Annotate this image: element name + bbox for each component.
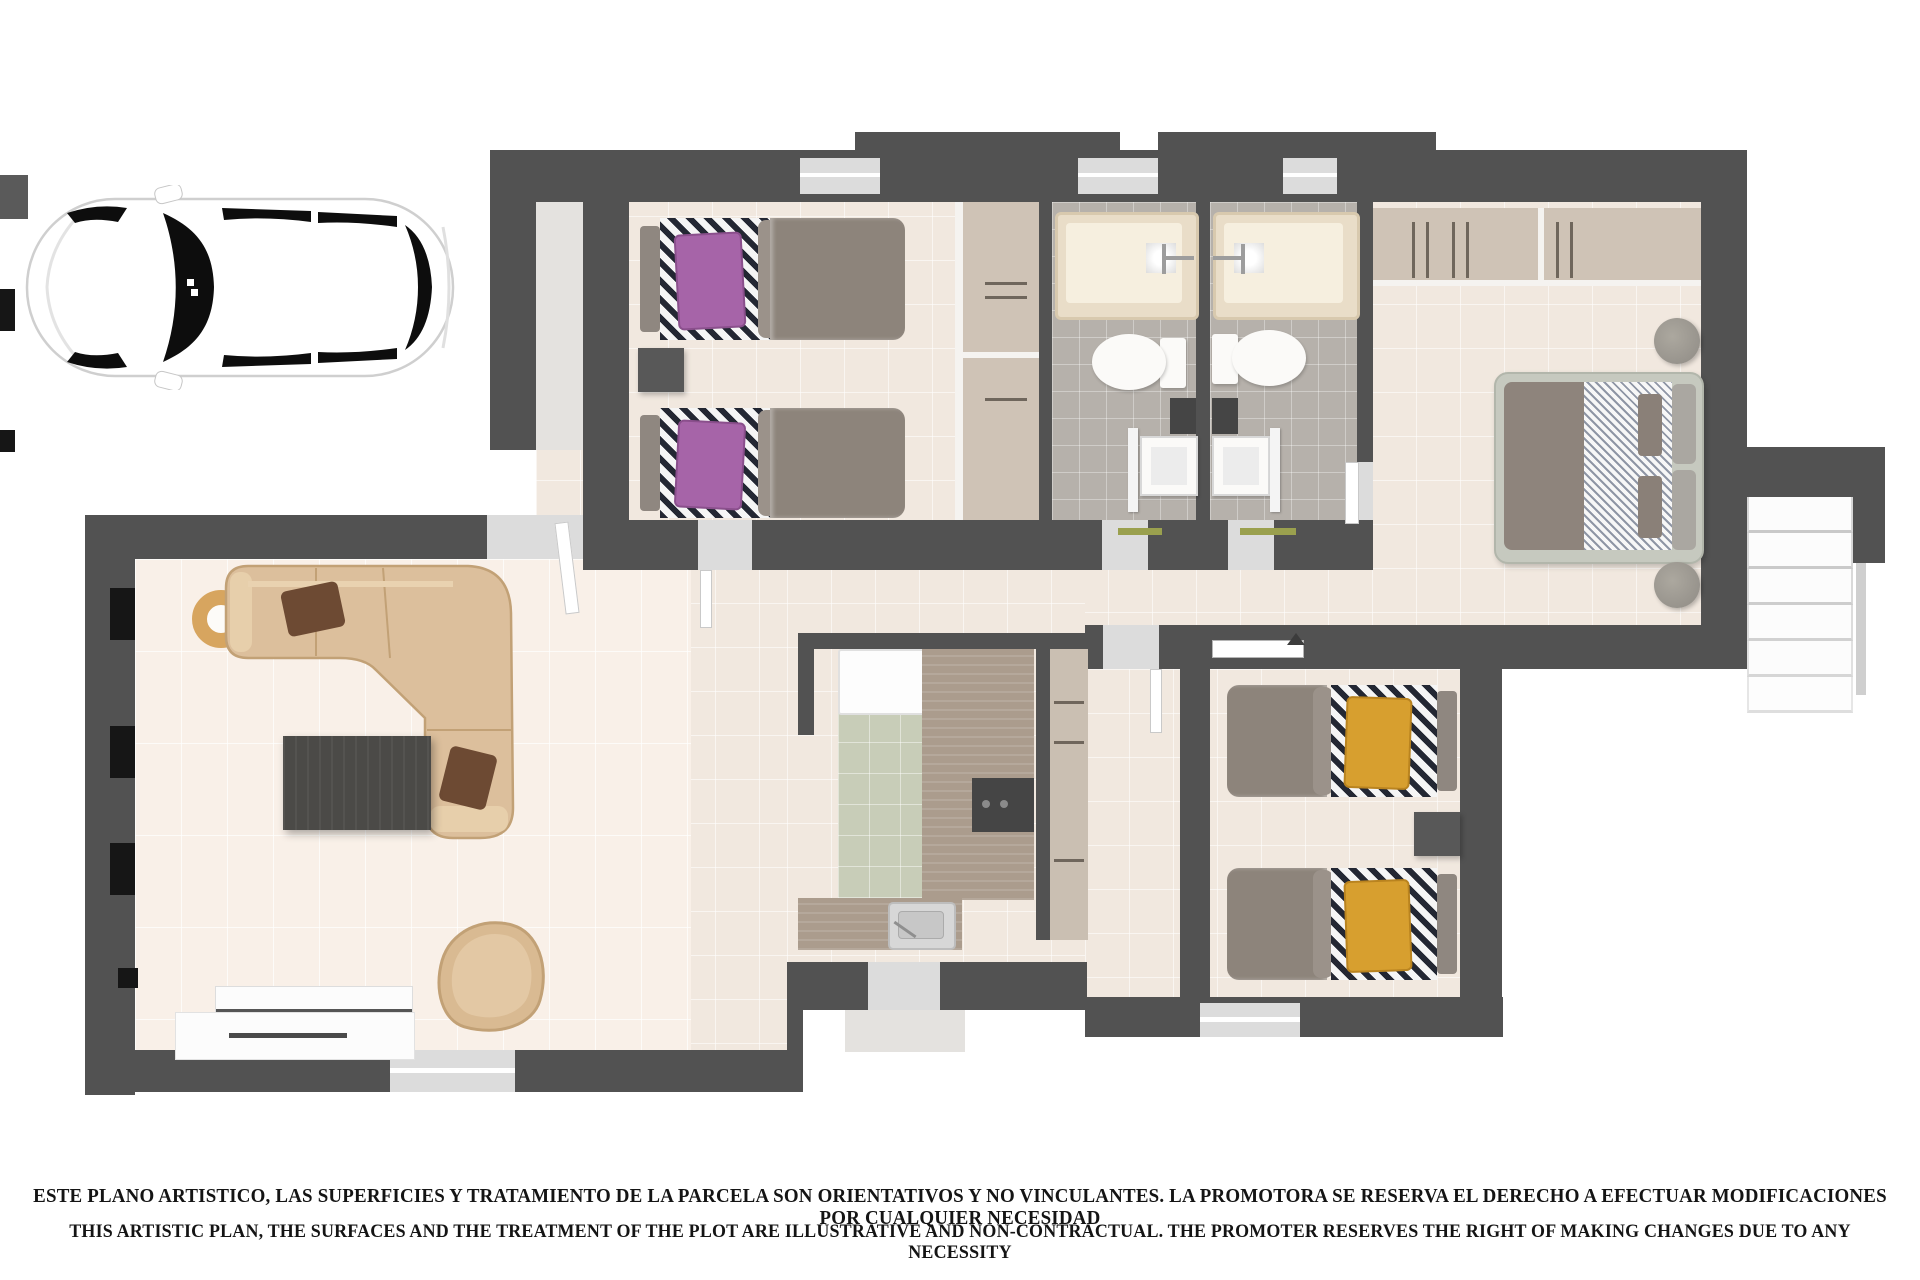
window-sill: [1283, 173, 1337, 177]
wall-bedroom3-left: [1180, 669, 1210, 997]
window-marker: [118, 968, 138, 988]
single-bed-purple-1: [640, 218, 905, 340]
master-open-closet: [1373, 208, 1701, 286]
bath-faucet: [1213, 238, 1247, 282]
bed-headboard: [640, 226, 660, 332]
round-bedside-table: [1654, 318, 1700, 364]
car-windshield-detail: [191, 289, 198, 296]
master-door-opening: [1357, 462, 1373, 520]
pillow-orange: [1343, 696, 1412, 790]
bath-niche: [1170, 398, 1196, 434]
pillow-purple: [674, 419, 747, 510]
cooktop-knob: [1000, 800, 1008, 808]
wall-stub-marker: [0, 175, 28, 219]
double-bed-master: [1494, 372, 1704, 564]
pillow-orange: [1343, 879, 1412, 973]
hanging-rail: [1556, 222, 1559, 278]
entry-porch-floor: [536, 202, 583, 450]
sink-panel: [1128, 428, 1138, 512]
wardrobe-handle: [985, 282, 1027, 285]
page-background: ESTE PLANO ARTISTICO, LAS SUPERFICIES Y …: [0, 0, 1920, 1280]
bath-niche: [1212, 398, 1238, 434]
cooktop-knob: [982, 800, 990, 808]
nightstand: [1414, 812, 1460, 856]
kitchen-sink: [888, 902, 956, 950]
towel-bar-green: [1240, 528, 1296, 535]
bed-duvet: [1227, 685, 1327, 797]
washbasin: [1212, 436, 1270, 496]
wardrobe-handle: [985, 296, 1027, 299]
wardrobe-divider: [955, 352, 1039, 358]
sink-panel: [1270, 428, 1280, 512]
bed-duvet: [770, 408, 905, 518]
wardrobe-handle: [985, 398, 1027, 401]
wall-bath1-left: [1037, 202, 1052, 520]
pillow-runner: [1638, 476, 1662, 538]
sink-basin: [898, 911, 944, 939]
wall-kitchen-top: [798, 633, 1088, 649]
bedroom1-wardrobe: [955, 202, 1039, 520]
fridge: [838, 649, 926, 715]
cabinet-handle: [1054, 701, 1084, 704]
faucet-arm: [1241, 244, 1245, 274]
hanging-rail: [1452, 222, 1455, 278]
shelf-bracket: [1287, 633, 1305, 645]
coffee-table: [283, 736, 431, 830]
bed-duvet: [770, 218, 905, 340]
back-porch-step: [845, 1010, 965, 1052]
toilet-bowl: [1092, 334, 1166, 390]
washbasin: [1140, 436, 1198, 496]
hall-tall-cabinets: [1050, 649, 1088, 940]
wall-shelf: [1212, 640, 1304, 658]
wall-living-top: [85, 515, 487, 559]
car-windshield-detail: [187, 279, 194, 286]
edge-marker: [0, 289, 15, 331]
window-sill: [390, 1068, 515, 1073]
duvet-fold: [1313, 870, 1333, 978]
staircase: [1747, 497, 1853, 713]
kitchen-back-door-opening: [868, 962, 940, 1010]
wardrobe-front-edge: [955, 202, 963, 520]
wall-stair-stub: [1853, 447, 1885, 563]
basin-inner: [1223, 447, 1259, 485]
single-bed-orange-1: [1227, 685, 1461, 797]
wall-bedroom3-right: [1460, 645, 1502, 1037]
master-door-leaf: [1345, 462, 1359, 524]
closet-front-edge: [1373, 280, 1701, 286]
bed-duvet: [1227, 868, 1327, 980]
pillow-grey: [1672, 470, 1696, 550]
bedroom1-door-opening: [698, 520, 752, 570]
window-sill: [1078, 173, 1158, 177]
bedroom1-door-leaf: [700, 570, 712, 628]
cabinet-handle: [1054, 741, 1084, 744]
bath-faucet: [1160, 238, 1194, 282]
sofa-armrest: [430, 806, 508, 832]
window-sill: [800, 173, 880, 177]
wall-kitchen-left-stub: [798, 633, 814, 735]
bedroom3-door-opening: [1103, 625, 1159, 669]
edge-marker: [0, 430, 15, 452]
pillow-purple: [674, 231, 747, 330]
towel-bar-green: [1118, 528, 1162, 535]
disclaimer-line-english: THIS ARTISTIC PLAN, THE SURFACES AND THE…: [29, 1222, 1891, 1264]
round-bedside-table: [1654, 562, 1700, 608]
cabinet-handle: [1054, 859, 1084, 862]
closet-divider: [1538, 208, 1544, 280]
nightstand: [638, 348, 684, 392]
faucet-arm: [1162, 244, 1166, 274]
stair-tread: [1747, 605, 1853, 641]
single-bed-purple-2: [640, 408, 905, 518]
hanging-rail: [1466, 222, 1469, 278]
stair-tread: [1747, 533, 1853, 569]
tv-sideboard-back: [215, 986, 413, 1014]
window-sill: [1200, 1017, 1300, 1022]
wall-stair-top: [1747, 447, 1853, 497]
hanging-rail: [1412, 222, 1415, 278]
wall-cabinet-column: [1036, 649, 1050, 940]
bed-headboard: [640, 415, 660, 511]
window-marker: [110, 588, 135, 640]
kitchen-counter-right: [922, 649, 1034, 900]
basin-inner: [1151, 447, 1187, 485]
wall-kitchen-bottom-jog: [787, 962, 803, 1092]
bed-headboard: [1437, 874, 1457, 974]
bedroom3-door-leaf: [1150, 669, 1162, 733]
hanging-rail: [1426, 222, 1429, 278]
stair-tread: [1747, 641, 1853, 677]
stair-side-wall: [1856, 563, 1866, 695]
duvet-fold: [1313, 687, 1333, 795]
window-marker: [110, 726, 135, 778]
wall-outer-right: [1701, 150, 1747, 628]
faucet-arm: [1213, 256, 1241, 260]
wall-top-raised: [855, 132, 1120, 152]
faucet-arm: [1166, 256, 1194, 260]
toilet-bowl: [1232, 330, 1306, 386]
bed-duvet: [1504, 382, 1584, 550]
tv-remote-handle: [229, 1033, 347, 1038]
single-bed-orange-2: [1227, 868, 1461, 980]
pillow-runner: [1638, 394, 1662, 456]
wall-middle-horizontal: [1085, 625, 1747, 669]
pillow-grey: [1672, 384, 1696, 464]
wall-bedroom1-left: [583, 202, 629, 570]
wall-outer-left-top: [490, 150, 536, 450]
cooktop: [972, 778, 1034, 832]
bed-headboard: [1437, 691, 1457, 791]
tv-sideboard-front: [175, 1012, 415, 1060]
stair-tread: [1747, 569, 1853, 605]
window-marker: [110, 843, 135, 895]
hanging-rail: [1570, 222, 1573, 278]
stair-tread: [1747, 497, 1853, 533]
car-top-view: [15, 185, 465, 390]
stair-tread: [1747, 677, 1853, 713]
wall-top-raised: [1158, 132, 1436, 152]
